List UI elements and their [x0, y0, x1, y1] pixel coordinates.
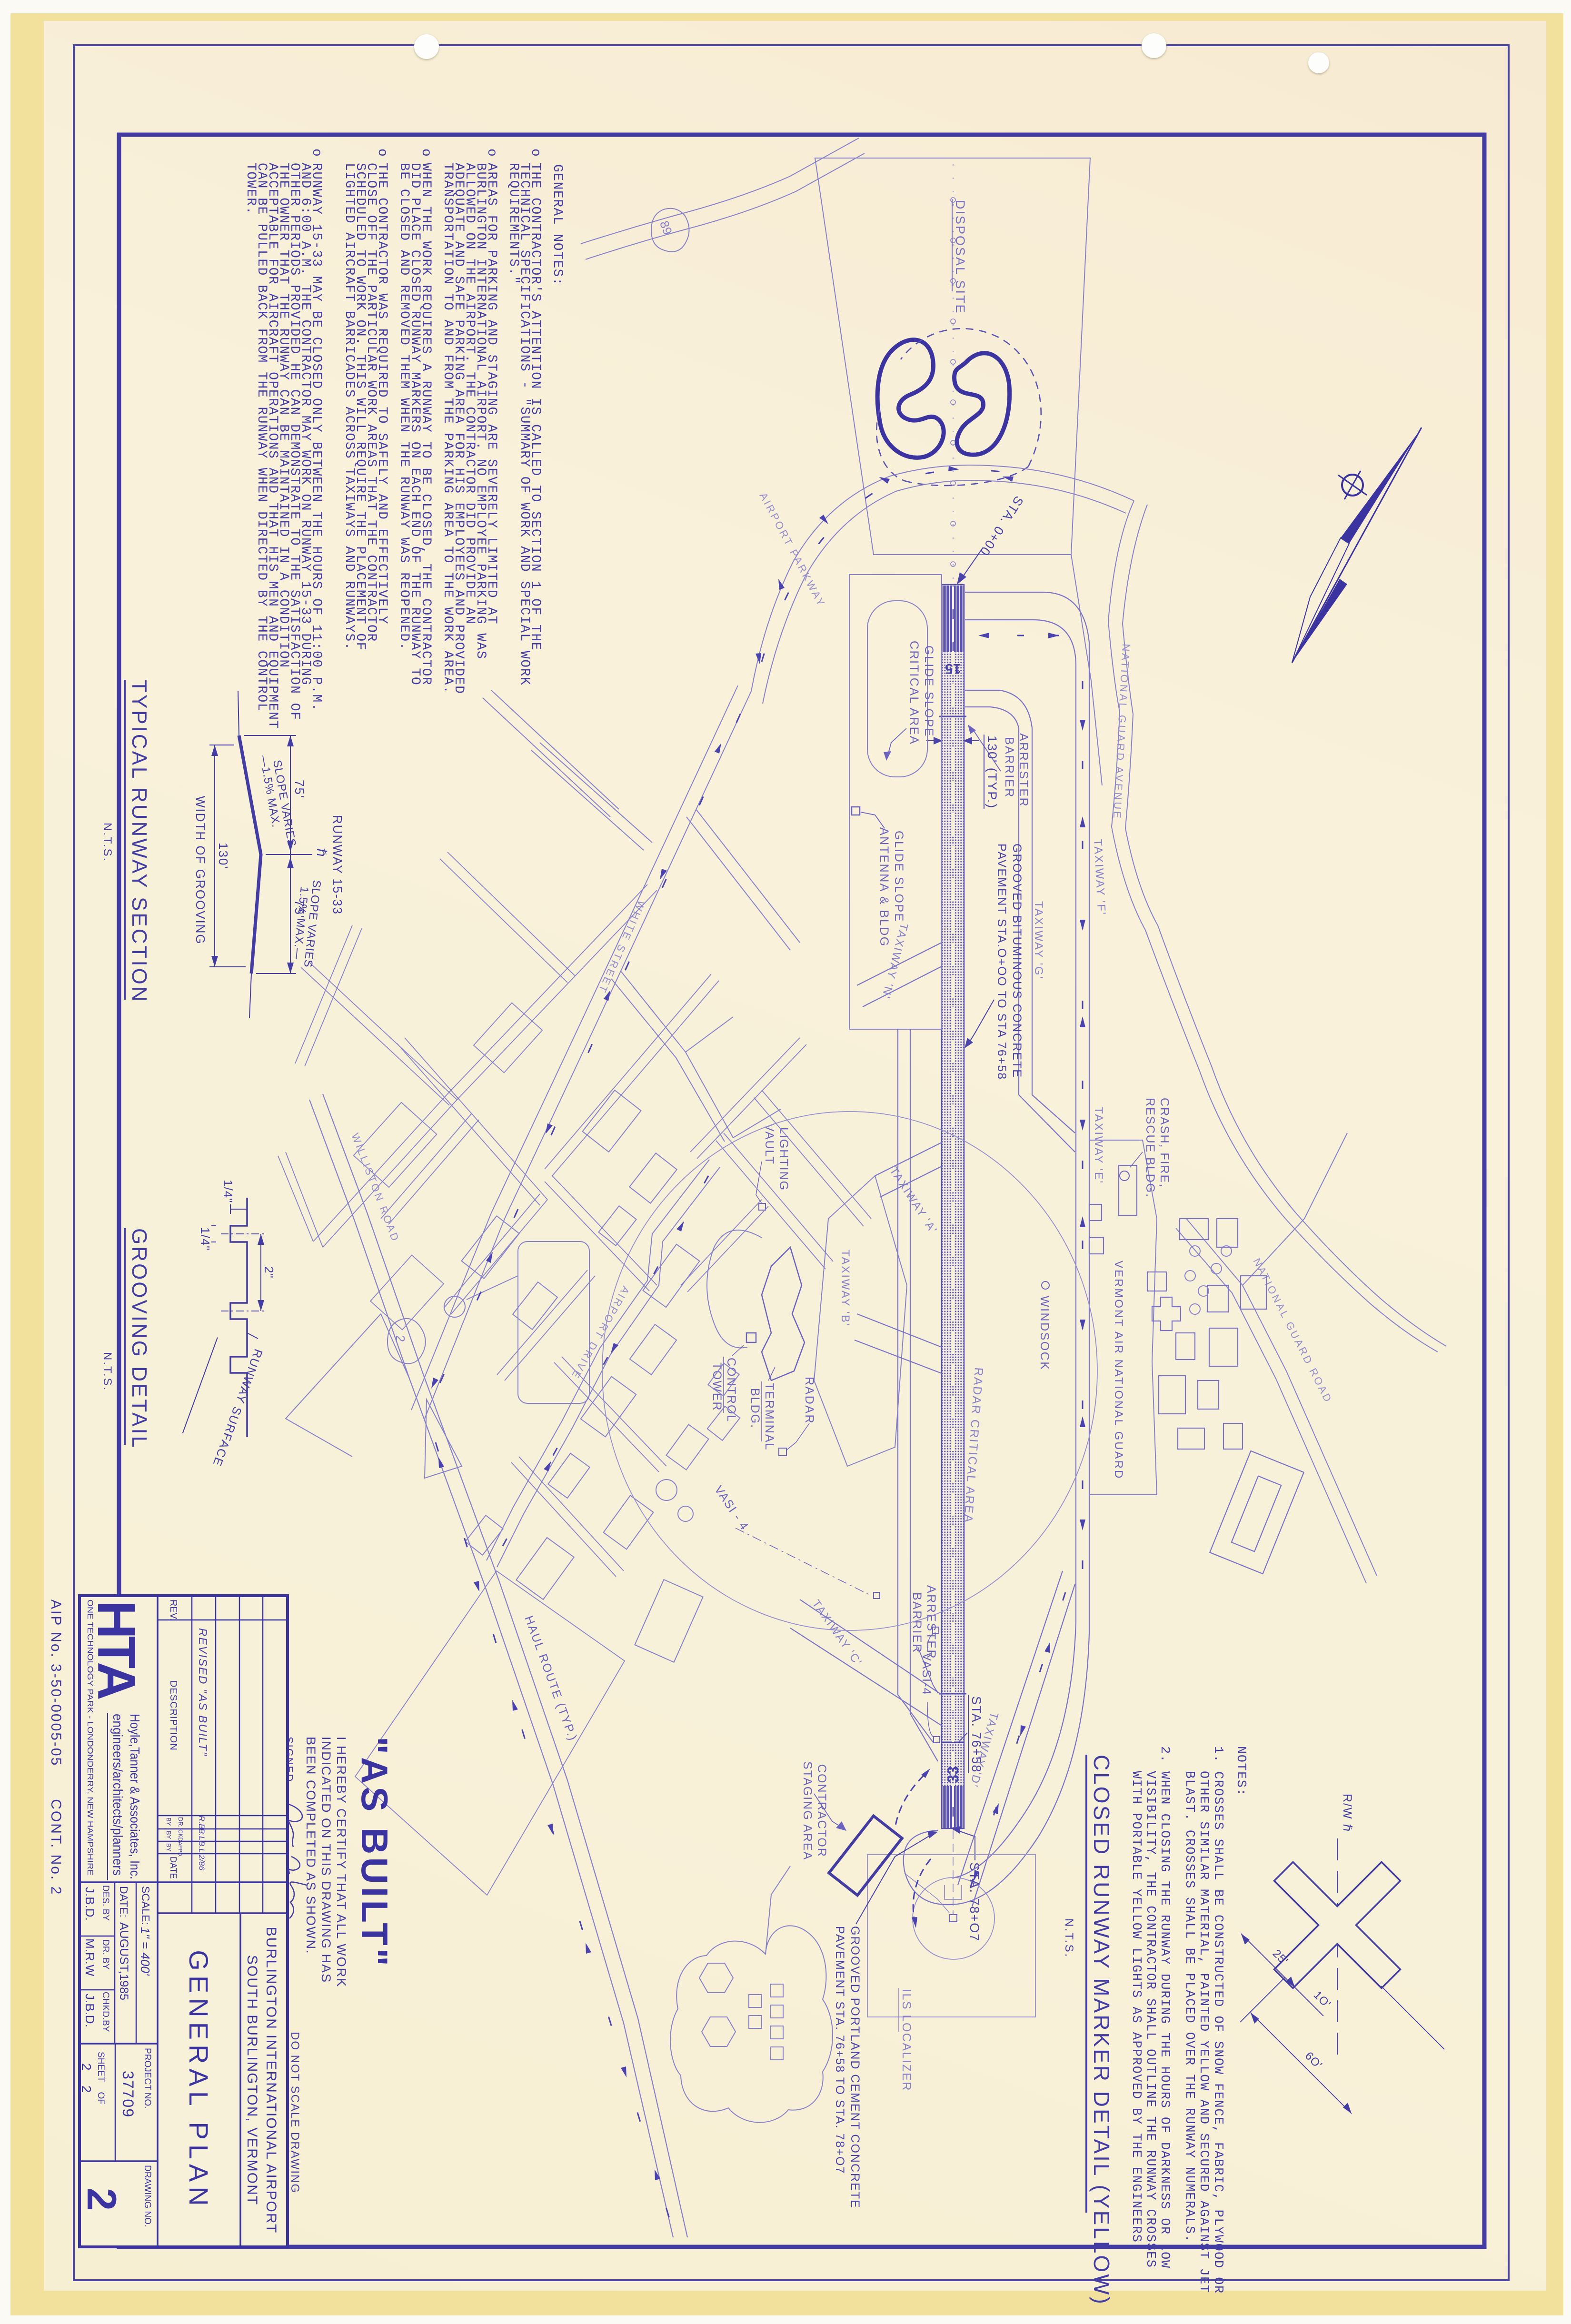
- svg-text:I HEREBY CERTIFY THAT ALL WORK: I HEREBY CERTIFY THAT ALL WORK: [334, 1737, 348, 1987]
- svg-text:37709: 37709: [119, 2071, 137, 2118]
- svg-text:engineers/architects/planners: engineers/architects/planners: [110, 1714, 125, 1876]
- svg-text:GLIDE SLOPE: GLIDE SLOPE: [892, 831, 905, 923]
- svg-text:SHEET OF: SHEET OF: [96, 2052, 106, 2105]
- svg-text:BY: BY: [165, 1817, 172, 1826]
- svg-text:J.B.D.: J.B.D.: [83, 1994, 97, 2027]
- svg-text:PROJECT NO.: PROJECT NO.: [142, 2048, 152, 2108]
- svg-text:RADAR: RADAR: [803, 1377, 816, 1424]
- svg-text:o: o: [418, 149, 433, 157]
- svg-text:1/4": 1/4": [198, 1227, 212, 1251]
- svg-text:DATE: DATE: [169, 1857, 178, 1879]
- svg-text:TERMINAL: TERMINAL: [763, 1383, 776, 1450]
- svg-text:N.T.S.: N.T.S.: [1063, 1918, 1075, 1958]
- svg-text:BY: BY: [165, 1831, 172, 1839]
- svg-text:REV.: REV.: [168, 1599, 179, 1621]
- svg-text:SOUTH BURLINGTON, VERMONT: SOUTH BURLINGTON, VERMONT: [244, 1955, 260, 2205]
- svg-text:J.B.D.: J.B.D.: [83, 1887, 97, 1921]
- svg-text:REVISED "AS BUILT": REVISED "AS BUILT": [196, 1628, 209, 1757]
- svg-text:PAVEMENT STA. 76+58 TO STA.: PAVEMENT STA. 76+58 TO STA. 78+O7: [833, 1926, 846, 2174]
- svg-text:TRANSPORTATION TO AND FROM THE: TRANSPORTATION TO AND FROM THE PARKING A…: [440, 163, 455, 694]
- svg-text:6O': 6O': [1303, 2049, 1325, 2072]
- svg-text:1/4": 1/4": [221, 1180, 235, 1203]
- svg-text:RUNWAY SURFACE: RUNWAY SURFACE: [210, 1347, 265, 1469]
- svg-text:BLAST. CROSSES SHALL BE PLACE: BLAST. CROSSES SHALL BE PLACED OVER THE …: [1182, 1771, 1196, 2243]
- svg-text:DESCRIPTION: DESCRIPTION: [168, 1680, 179, 1751]
- svg-text:AIRPORT PARKWAY: AIRPORT PARKWAY: [757, 491, 828, 609]
- svg-text:CRITICAL AREA: CRITICAL AREA: [907, 641, 921, 745]
- svg-text:DES. BY: DES. BY: [100, 1885, 110, 1921]
- svg-text:CLOSED RUNWAY MARKER DETAIL (Y: CLOSED RUNWAY MARKER DETAIL (YELLOW): [1089, 1755, 1114, 2306]
- svg-text:TYPICAL RUNWAY SECTION: TYPICAL RUNWAY SECTION: [128, 680, 151, 1003]
- svg-text:TAXIWAY 'A': TAXIWAY 'A': [887, 1165, 940, 1237]
- svg-text:CONTROL: CONTROL: [725, 1358, 738, 1422]
- svg-text:WINDSOCK: WINDSOCK: [1038, 1296, 1051, 1371]
- svg-text:INDICATED ON THIS DRAWING HAS: INDICATED ON THIS DRAWING HAS: [319, 1737, 333, 1983]
- svg-text:o: o: [309, 149, 324, 157]
- svg-text:WHITE STREET: WHITE STREET: [596, 899, 647, 996]
- svg-text:ANTENNA & BLDG: ANTENNA & BLDG: [877, 827, 891, 947]
- svg-text:BLDG.: BLDG.: [748, 1388, 762, 1429]
- svg-text:2: 2: [79, 2188, 124, 2211]
- svg-text:R/W ℏ: R/W ℏ: [1341, 1794, 1354, 1832]
- svg-text:15: 15: [945, 661, 961, 676]
- svg-text:DR.: DR.: [177, 1817, 184, 1827]
- svg-text:ILS LOCALIZER: ILS LOCALIZER: [900, 1989, 913, 2092]
- svg-text:TOWER.: TOWER.: [243, 163, 258, 215]
- svg-text:STA. 0+00: STA. 0+00: [977, 494, 1026, 559]
- svg-text:CAN BE PULLED BACK FROM THE RU: CAN BE PULLED BACK FROM THE RUNWAY WHEN …: [254, 163, 269, 712]
- svg-text:AIRPORT DRIVE: AIRPORT DRIVE: [568, 1284, 632, 1382]
- svg-text:89: 89: [657, 219, 675, 237]
- svg-text:TAXIWAY 'F': TAXIWAY 'F': [1091, 839, 1108, 916]
- svg-text:DR. BY: DR. BY: [100, 1939, 110, 1970]
- svg-text:RADAR CRITICAL AREA: RADAR CRITICAL AREA: [961, 1367, 985, 1524]
- svg-text:2": 2": [262, 1266, 276, 1279]
- svg-text:GROOVING DETAIL: GROOVING DETAIL: [128, 1228, 151, 1450]
- svg-text:REQUIREMENTS.": REQUIREMENTS.": [506, 163, 521, 285]
- svg-text:ARRESTER: ARRESTER: [925, 1585, 938, 1659]
- svg-text:GROOVED BITUMINOUS CONCRETE: GROOVED BITUMINOUS CONCRETE: [1010, 844, 1024, 1078]
- svg-text:o: o: [375, 149, 389, 157]
- svg-text:NATIONAL GUARD AVENUE: NATIONAL GUARD AVENUE: [1111, 644, 1132, 821]
- svg-text:TAXIWAY 'E': TAXIWAY 'E': [1092, 1107, 1105, 1184]
- svg-text:130': 130': [216, 843, 230, 869]
- svg-text:VASI-4: VASI-4: [920, 1653, 933, 1695]
- svg-text:GENERAL NOTES:: GENERAL NOTES:: [550, 164, 565, 286]
- svg-text:CRASH, FIRE,: CRASH, FIRE,: [1158, 1098, 1171, 1188]
- svg-text:TAXIWAY 'B': TAXIWAY 'B': [839, 1250, 852, 1327]
- svg-text:BY: BY: [165, 1843, 172, 1852]
- svg-text:APPD.: APPD.: [177, 1842, 183, 1857]
- svg-text:N.T.S.: N.T.S.: [101, 1352, 114, 1391]
- svg-text:N.T.S.: N.T.S.: [101, 823, 114, 862]
- svg-text:VERMONT AIR NATIONAL GUARD: VERMONT AIR NATIONAL GUARD: [1112, 1261, 1125, 1480]
- svg-text:GENERAL PLAN: GENERAL PLAN: [184, 1950, 214, 2210]
- svg-text:2. WHEN CLOSING THE RUNWAY DU: 2. WHEN CLOSING THE RUNWAY DURING THE HO…: [1157, 1746, 1172, 2269]
- svg-text:CONTRACTOR: CONTRACTOR: [815, 1764, 828, 1857]
- svg-text:1" = 400': 1" = 400': [138, 1927, 152, 1976]
- svg-text:VISIBILITY, THE CONTRACTOR SHA: VISIBILITY, THE CONTRACTOR SHALL OUTLINE…: [1143, 1771, 1157, 2268]
- svg-text:ℏ: ℏ: [314, 848, 329, 858]
- svg-text:LIGHTED AIRCRAFT BARRICADES AC: LIGHTED AIRCRAFT BARRICADES ACROSS TAXIW…: [342, 163, 357, 651]
- svg-text:OTHER SIMILAR MATERIAL, PAINTE: OTHER SIMILAR MATERIAL, PAINTED YELLOW A…: [1196, 1771, 1211, 2294]
- svg-text:VASI - 4: VASI - 4: [712, 1483, 751, 1533]
- svg-text:DRAWING NO.: DRAWING NO.: [142, 2165, 152, 2227]
- svg-text:AUGUST,1985: AUGUST,1985: [117, 1922, 130, 2000]
- svg-text:33: 33: [945, 1766, 962, 1783]
- svg-text:TAXIWAY 'G': TAXIWAY 'G': [1032, 901, 1045, 980]
- svg-text:2 2: 2 2: [79, 2063, 94, 2093]
- svg-text:VAULT: VAULT: [763, 1123, 776, 1165]
- svg-text:2: 2: [393, 1335, 408, 1342]
- svg-text:WIDTH OF GROOVING: WIDTH OF GROOVING: [193, 796, 208, 945]
- svg-text:ONE TECHNOLOGY PARK - LONDONDE: ONE TECHNOLOGY PARK - LONDONDERRY, NEW H…: [86, 1599, 95, 1876]
- svg-text:RESCUE BLDG.: RESCUE BLDG.: [1143, 1098, 1157, 1198]
- svg-text:M.R.W: M.R.W: [83, 1938, 97, 1976]
- svg-text:CKD.: CKD.: [177, 1829, 184, 1843]
- svg-text:NOTES:: NOTES:: [1233, 1746, 1248, 1797]
- svg-text:DATE:: DATE:: [118, 1886, 130, 1917]
- svg-text:Hoyle,Tanner & Associates, Inc: Hoyle,Tanner & Associates, Inc.: [128, 1714, 142, 1879]
- svg-text:2/86: 2/86: [197, 1854, 206, 1871]
- svg-text:75': 75': [292, 780, 307, 799]
- svg-text:SCALE:: SCALE:: [139, 1886, 152, 1925]
- svg-text:CHKD.BY: CHKD.BY: [100, 1992, 110, 2032]
- svg-text:LIGHTING: LIGHTING: [777, 1127, 790, 1191]
- svg-text:TOWER: TOWER: [710, 1362, 724, 1411]
- svg-text:DISPOSAL SITE: DISPOSAL SITE: [953, 200, 967, 315]
- svg-text:BEEN COMPLETED AS SHOWN.: BEEN COMPLETED AS SHOWN.: [304, 1737, 318, 1955]
- svg-text:HTA: HTA: [87, 1600, 146, 1699]
- svg-text:WITH PORTABLE YELLOW LIGHTS AS: WITH PORTABLE YELLOW LIGHTS AS APPROVED …: [1129, 1771, 1143, 2251]
- svg-text:1O': 1O': [1311, 1988, 1333, 2011]
- svg-text:BE CLOSED AND REMOVED THEM WHE: BE CLOSED AND REMOVED THEM WHEN THE RUNW…: [397, 163, 411, 651]
- svg-text:BARRIER: BARRIER: [910, 1592, 924, 1654]
- svg-text:GROOVED PORTLAND CEMENT CONCRE: GROOVED PORTLAND CEMENT CONCRETE: [848, 1926, 862, 2209]
- svg-text:NATIONAL GUARD ROAD: NATIONAL GUARD ROAD: [1251, 1256, 1335, 1405]
- svg-text:AIP No. 3-50-0005-05 CO: AIP No. 3-50-0005-05 CONT. No. 2: [48, 1599, 64, 1896]
- svg-text:BARRIER: BARRIER: [1003, 737, 1016, 798]
- svg-text:STAGING AREA: STAGING AREA: [801, 1761, 814, 1860]
- svg-text:PAVEMENT STA.O+OO TO STA 7: PAVEMENT STA.O+OO TO STA 76+58: [995, 844, 1008, 1080]
- svg-text:B.L.: B.L.: [197, 1841, 206, 1855]
- svg-text:o: o: [528, 149, 543, 157]
- svg-text:BURLINGTON INTERNATIONAL AIR: BURLINGTON INTERNATIONAL AIRPORT: [263, 1927, 279, 2234]
- svg-text:GLIDE SLOPE: GLIDE SLOPE: [922, 646, 935, 737]
- svg-text:o: o: [484, 149, 499, 157]
- svg-text:1. CROSSES SHALL BE CONSTRUCT: 1. CROSSES SHALL BE CONSTRUCTED OF SNOW …: [1211, 1746, 1225, 2294]
- svg-text:DO NOT SCALE DRAWING: DO NOT SCALE DRAWING: [288, 2032, 301, 2194]
- svg-text:"AS BUILT": "AS BUILT": [354, 1737, 396, 1969]
- svg-text:130' (TYP.): 130' (TYP.): [985, 735, 999, 809]
- svg-text:RUNWAY 15-33: RUNWAY 15-33: [330, 815, 345, 915]
- svg-text:HAUL ROUTE (TYP.): HAUL ROUTE (TYP.): [522, 1614, 580, 1743]
